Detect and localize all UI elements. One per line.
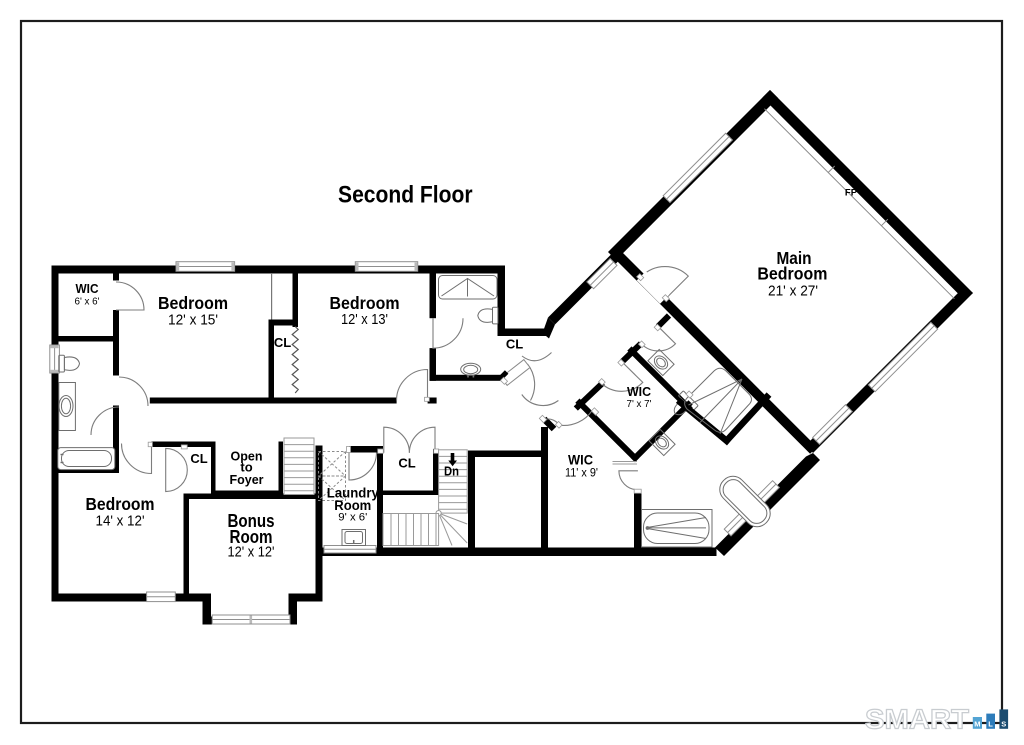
svg-text:Dn: Dn	[444, 464, 459, 479]
svg-text:12' x 12': 12' x 12'	[228, 545, 275, 561]
svg-text:14' x 12': 14' x 12'	[96, 514, 145, 530]
svg-text:WIC: WIC	[76, 282, 99, 296]
svg-text:Bedroom: Bedroom	[158, 293, 228, 313]
svg-text:CL: CL	[398, 456, 415, 471]
svg-text:Foyer: Foyer	[230, 472, 264, 487]
svg-text:9' x 6': 9' x 6'	[338, 512, 367, 524]
svg-text:L: L	[988, 720, 993, 729]
svg-text:Bedroom: Bedroom	[86, 494, 155, 514]
svg-text:CL: CL	[506, 337, 523, 352]
svg-text:21' x 27': 21' x 27'	[768, 284, 818, 300]
svg-text:S: S	[1001, 720, 1006, 729]
svg-text:M: M	[974, 720, 980, 729]
svg-text:7' x 7': 7' x 7'	[627, 398, 652, 410]
svg-text:12' x 13': 12' x 13'	[341, 312, 388, 328]
svg-text:Second Floor: Second Floor	[338, 182, 473, 209]
svg-text:CL: CL	[274, 335, 291, 350]
svg-text:Bedroom: Bedroom	[330, 293, 400, 313]
svg-text:WIC: WIC	[568, 453, 593, 468]
svg-text:SMART: SMART	[865, 704, 969, 735]
svg-text:6' x 6': 6' x 6'	[75, 296, 100, 308]
svg-text:CL: CL	[190, 451, 207, 466]
svg-text:WIC: WIC	[627, 384, 652, 399]
svg-text:12' x 15': 12' x 15'	[168, 313, 218, 329]
svg-text:Bedroom: Bedroom	[757, 264, 827, 284]
svg-text:FP: FP	[845, 188, 858, 199]
svg-text:11' x 9': 11' x 9'	[565, 468, 598, 480]
